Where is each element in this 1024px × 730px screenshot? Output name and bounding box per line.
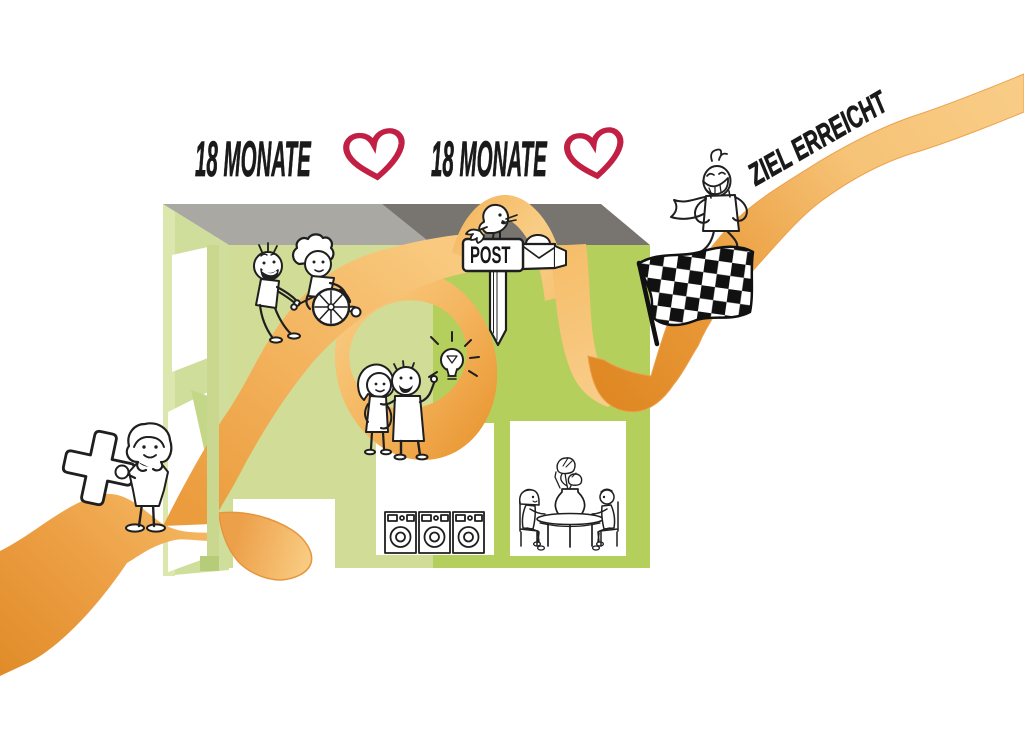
svg-text:18 MONATE: 18 MONATE [431, 131, 547, 187]
svg-text:POST: POST [470, 242, 511, 269]
svg-text:18 MONATE: 18 MONATE [195, 131, 311, 187]
